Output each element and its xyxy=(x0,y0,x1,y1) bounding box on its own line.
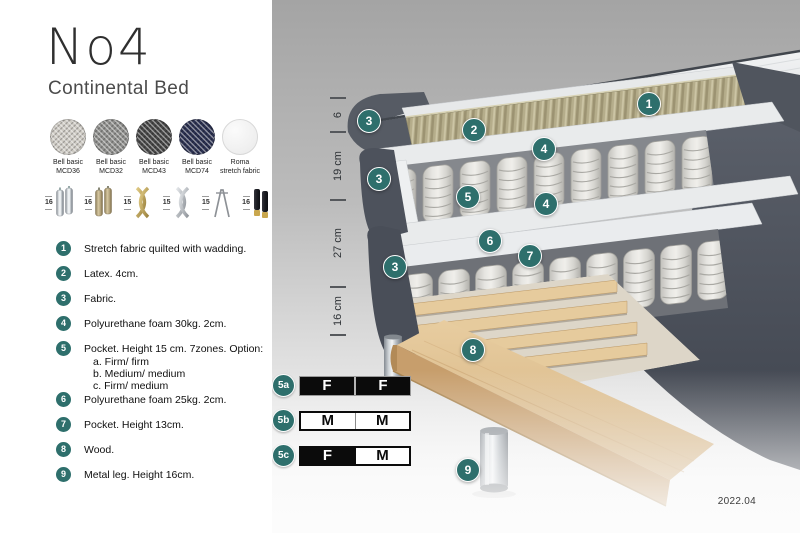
fabric-swatch-label: Bell basic MCD74 xyxy=(176,158,218,176)
leg-twist-silver-icon xyxy=(172,186,193,220)
leg-options: 16 16 xyxy=(45,186,271,220)
fabric-name: Bell basic xyxy=(139,159,169,166)
firmness-row: 5b M M xyxy=(272,409,411,432)
fabric-swatch: Roma stretch fabric xyxy=(219,119,261,176)
firmness-cell: M xyxy=(354,448,409,464)
leg-height: 16 xyxy=(45,195,53,211)
firmness-cell: F xyxy=(301,448,354,464)
leg-height-label: 16 xyxy=(84,198,92,208)
feature-text: Pocket. Height 13cm. xyxy=(84,417,184,432)
tick xyxy=(45,209,52,210)
leg-height: 16 xyxy=(84,195,92,211)
leg-height: 15 xyxy=(163,195,171,211)
leg-height-label: 16 xyxy=(45,198,53,208)
fabric-code: MCD36 xyxy=(56,168,80,175)
fabric-name: Roma xyxy=(231,159,250,166)
feature-badge: 1 xyxy=(56,241,71,256)
feature-item: 4 Polyurethane foam 30kg. 2cm. xyxy=(56,316,274,331)
firmness-cell: M xyxy=(301,413,355,429)
callout-badge: 4 xyxy=(532,137,556,161)
firmness-badge: 5b xyxy=(272,409,295,432)
fabric-code: MCD43 xyxy=(142,168,166,175)
callout-badge: 6 xyxy=(478,229,502,253)
fabric-code: stretch fabric xyxy=(220,168,260,175)
tick xyxy=(202,196,209,197)
firmness-row: 5c F M xyxy=(272,444,411,467)
leg-height-label: 15 xyxy=(202,198,210,208)
fabric-name: Bell basic xyxy=(182,159,212,166)
fabric-swatch-circle xyxy=(136,119,172,155)
feature-badge: 8 xyxy=(56,442,71,457)
tick xyxy=(85,209,92,210)
fabric-name: Bell basic xyxy=(53,159,83,166)
leg-cylinder-black-gold-icon xyxy=(251,186,271,220)
firmness-bar: F M xyxy=(299,446,411,466)
ruler-tick xyxy=(330,199,346,201)
bed-cutaway-illustration: 6 19 cm 27 cm 16 cm 1 2 3 3 3 4 4 5 6 7 … xyxy=(272,0,800,533)
fabric-swatch-label: Roma stretch fabric xyxy=(219,158,261,176)
leg-option: 16 xyxy=(84,186,114,220)
leg-option: 15 xyxy=(163,186,193,220)
dimension-label: 16 cm xyxy=(332,296,344,326)
leg-twist-gold-icon xyxy=(132,186,153,220)
fabric-code: MCD32 xyxy=(99,168,123,175)
leg-height: 15 xyxy=(202,195,210,211)
callout-badge: 3 xyxy=(367,167,391,191)
feature-item: 2 Latex. 4cm. xyxy=(56,266,274,281)
feature-text: Fabric. xyxy=(84,291,116,306)
feature-badge: 2 xyxy=(56,266,71,281)
ruler-tick xyxy=(330,286,346,288)
feature-item: 9 Metal leg. Height 16cm. xyxy=(56,467,274,482)
page-subtitle: Continental Bed xyxy=(48,78,189,100)
fabric-swatch: Bell basic MCD43 xyxy=(133,119,175,176)
leg-option: 16 xyxy=(45,186,75,220)
product-sheet: No4 Continental Bed Bell basic MCD36 Bel… xyxy=(0,0,800,533)
page-title: No4 xyxy=(46,18,152,76)
feature-badge: 3 xyxy=(56,291,71,306)
feature-item: 3 Fabric. xyxy=(56,291,274,306)
feature-text: Latex. 4cm. xyxy=(84,266,138,281)
callout-badge: 2 xyxy=(462,118,486,142)
firmness-row: 5a F F xyxy=(272,374,411,397)
tick xyxy=(124,209,131,210)
feature-badge: 5 xyxy=(56,341,71,356)
tick xyxy=(85,196,92,197)
ruler-tick xyxy=(330,131,346,133)
fabric-swatch-circle xyxy=(93,119,129,155)
fabric-swatch-circle xyxy=(50,119,86,155)
callout-badge: 9 xyxy=(456,458,480,482)
ruler-tick xyxy=(330,334,346,336)
leg-cylinder-bronze-icon xyxy=(93,186,114,220)
leg-option: 16 xyxy=(242,186,271,220)
feature-badge: 4 xyxy=(56,316,71,331)
dimension-label: 6 xyxy=(332,112,344,118)
callout-badge: 7 xyxy=(518,244,542,268)
tick xyxy=(45,196,52,197)
leg-height-label: 16 xyxy=(242,198,250,208)
feature-item: 8 Wood. xyxy=(56,442,274,457)
feature-text: Pocket. Height 15 cm. 7zones. Option: a.… xyxy=(84,341,263,392)
tick xyxy=(124,196,131,197)
firmness-cell: M xyxy=(355,413,410,429)
leg-hairpin-icon xyxy=(211,186,233,220)
leg-height-label: 15 xyxy=(163,198,171,208)
leg-height: 15 xyxy=(123,195,131,211)
callout-badge: 1 xyxy=(637,92,661,116)
feature-item: 7 Pocket. Height 13cm. xyxy=(56,417,274,432)
feature-badge: 6 xyxy=(56,392,71,407)
feature-text: Wood. xyxy=(84,442,114,457)
leg-option: 15 xyxy=(123,186,153,220)
ruler-tick xyxy=(330,97,346,99)
feature-item: 1 Stretch fabric quilted with wadding. xyxy=(56,241,274,256)
fabric-swatch: Bell basic MCD74 xyxy=(176,119,218,176)
fabric-name: Bell basic xyxy=(96,159,126,166)
feature-badge: 9 xyxy=(56,467,71,482)
fabric-swatch-label: Bell basic MCD32 xyxy=(90,158,132,176)
leg-option: 15 xyxy=(202,186,233,220)
feature-item: 5 Pocket. Height 15 cm. 7zones. Option: … xyxy=(56,341,274,392)
leg-cylinder-chrome-icon xyxy=(54,186,75,220)
feature-text: Metal leg. Height 16cm. xyxy=(84,467,194,482)
firmness-badge: 5c xyxy=(272,444,295,467)
fabric-swatch-circle xyxy=(222,119,258,155)
firmness-cell: F xyxy=(300,377,354,395)
fabric-swatch-label: Bell basic MCD36 xyxy=(47,158,89,176)
feature-text: Stretch fabric quilted with wadding. xyxy=(84,241,246,256)
fabric-swatches: Bell basic MCD36 Bell basic MCD32 Bell b… xyxy=(47,119,261,176)
callout-badge: 3 xyxy=(357,109,381,133)
leg-height: 16 xyxy=(242,195,250,211)
tick xyxy=(163,209,170,210)
leg-height-label: 15 xyxy=(123,198,131,208)
firmness-badge: 5a xyxy=(272,374,295,397)
tick xyxy=(202,209,209,210)
callout-badge: 3 xyxy=(383,255,407,279)
firmness-bar: M M xyxy=(299,411,411,431)
firmness-cell: F xyxy=(356,377,410,395)
callout-badge: 4 xyxy=(534,192,558,216)
feature-item: 6 Polyurethane foam 25kg. 2cm. xyxy=(56,392,274,407)
fabric-swatch-label: Bell basic MCD43 xyxy=(133,158,175,176)
firmness-bar: F F xyxy=(299,376,411,396)
callout-badge: 5 xyxy=(456,185,480,209)
fabric-code: MCD74 xyxy=(185,168,209,175)
tick xyxy=(163,196,170,197)
dimension-label: 19 cm xyxy=(332,151,344,181)
feature-text: Polyurethane foam 30kg. 2cm. xyxy=(84,316,226,331)
feature-suboption: c. Firm/ medium xyxy=(93,380,263,392)
fabric-swatch: Bell basic MCD36 xyxy=(47,119,89,176)
callout-badge: 8 xyxy=(461,338,485,362)
fabric-swatch: Bell basic MCD32 xyxy=(90,119,132,176)
feature-text-main: Pocket. Height 15 cm. 7zones. Option: xyxy=(84,343,263,355)
feature-badge: 7 xyxy=(56,417,71,432)
left-panel: No4 Continental Bed Bell basic MCD36 Bel… xyxy=(0,0,272,533)
tick xyxy=(243,209,250,210)
version-label: 2022.04 xyxy=(718,496,756,507)
feature-text: Polyurethane foam 25kg. 2cm. xyxy=(84,392,226,407)
dimension-label: 27 cm xyxy=(332,228,344,258)
fabric-swatch-circle xyxy=(179,119,215,155)
feature-suboption: a. Firm/ firm xyxy=(93,356,263,368)
tick xyxy=(243,196,250,197)
feature-suboption: b. Medium/ medium xyxy=(93,368,263,380)
features-list: 1 Stretch fabric quilted with wadding. 2… xyxy=(56,241,274,492)
